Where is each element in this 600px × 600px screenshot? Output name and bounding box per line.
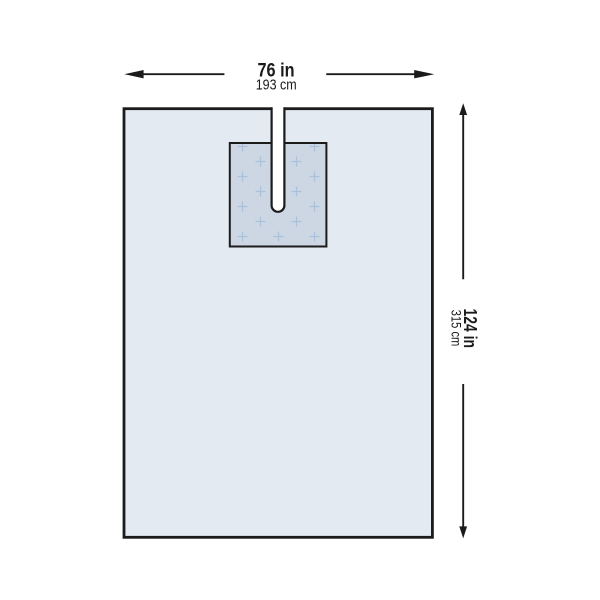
svg-text:193 cm: 193 cm xyxy=(256,78,297,94)
svg-text:315 cm: 315 cm xyxy=(449,310,464,347)
